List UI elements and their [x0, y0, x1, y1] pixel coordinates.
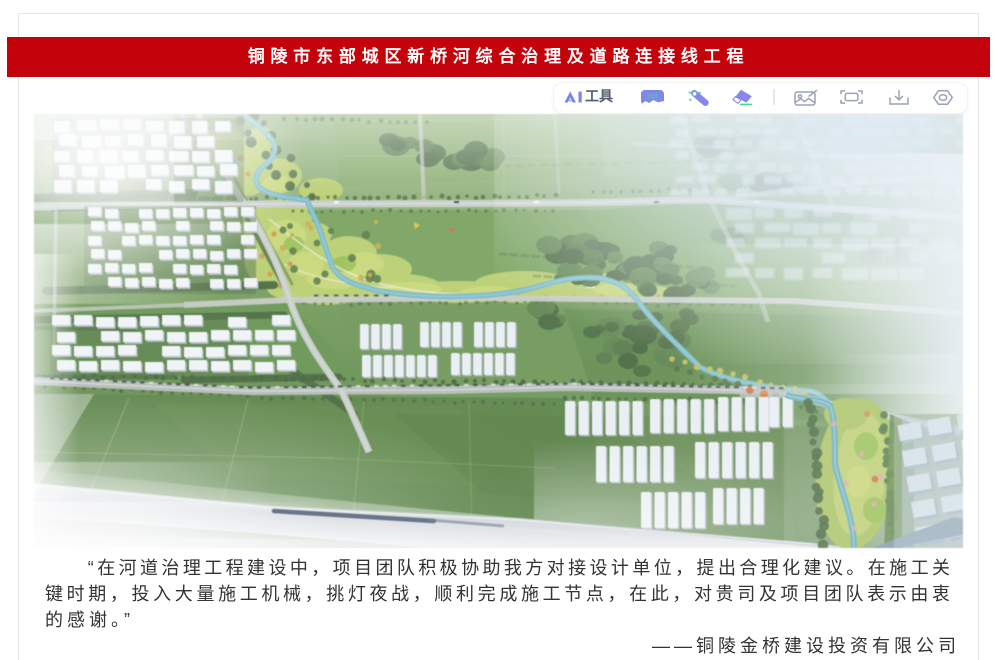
svg-text:HD: HD: [647, 92, 658, 101]
